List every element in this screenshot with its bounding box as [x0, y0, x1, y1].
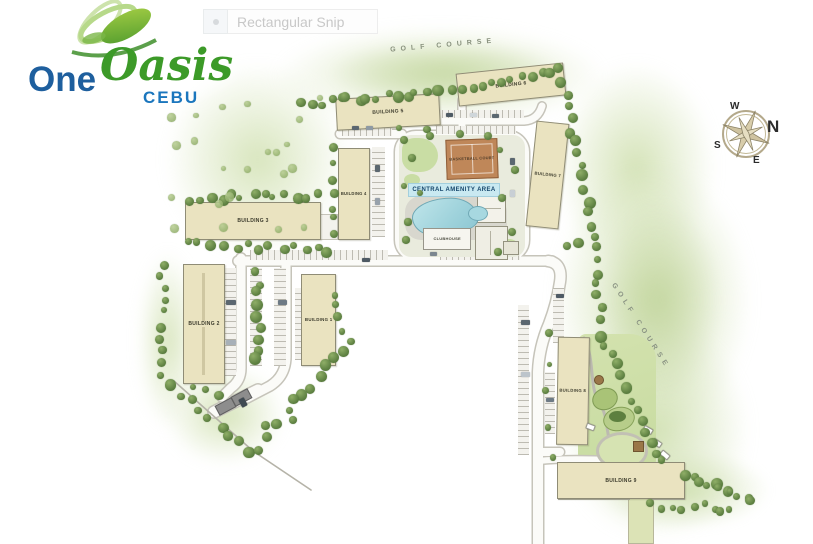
tree-icon	[579, 162, 586, 169]
tree-icon	[583, 207, 592, 216]
tree-icon	[498, 194, 506, 202]
tree-icon	[271, 419, 282, 430]
tree-icon	[542, 387, 549, 394]
tree-icon	[404, 218, 411, 225]
tree-icon	[320, 359, 332, 371]
tree-icon	[269, 194, 275, 200]
car	[446, 113, 453, 117]
tree-icon	[408, 154, 415, 161]
tree-icon	[205, 240, 216, 251]
tree-icon	[612, 358, 623, 369]
tree-icon	[328, 176, 337, 185]
tree-icon	[234, 245, 243, 254]
parking-stalls	[436, 126, 516, 134]
snip-mode-label[interactable]: Rectangular Snip	[228, 9, 378, 34]
tree-icon	[329, 206, 337, 214]
car	[521, 320, 530, 325]
tree-icon	[249, 352, 261, 364]
tree-icon	[332, 292, 339, 299]
tree-icon	[280, 245, 290, 255]
tree-icon	[338, 346, 349, 357]
tree-icon	[511, 166, 518, 173]
tree-icon	[570, 135, 581, 146]
tree-icon	[223, 431, 232, 440]
tree-icon	[591, 290, 600, 299]
tree-icon	[254, 245, 263, 254]
car	[278, 300, 287, 305]
tree-icon	[191, 137, 198, 144]
car	[510, 190, 515, 197]
clubhouse: CLUBHOUSE	[423, 228, 471, 250]
tree-icon	[329, 95, 337, 103]
tree-icon	[244, 166, 251, 173]
car	[492, 114, 499, 118]
tree-icon	[587, 222, 596, 231]
basketball-court: BASKETBALL COURT	[445, 138, 498, 180]
building-8: BUILDING 8	[556, 337, 590, 446]
tree-icon	[634, 406, 642, 414]
tree-icon	[592, 242, 601, 251]
building-label: BUILDING 9	[605, 478, 636, 484]
south-boundary-line2	[651, 499, 685, 500]
car	[510, 158, 515, 165]
parking-stalls	[372, 147, 385, 237]
tree-icon	[251, 189, 261, 199]
building-label: BUILDING 4	[341, 192, 367, 197]
tree-icon	[162, 297, 169, 304]
tree-icon	[448, 85, 457, 94]
tree-icon	[716, 507, 724, 515]
car	[521, 372, 530, 377]
car	[226, 340, 236, 345]
car	[366, 126, 373, 130]
tree-icon	[339, 328, 345, 334]
tree-icon	[321, 247, 332, 258]
snip-mode-button[interactable]	[203, 9, 228, 34]
tree-icon	[555, 77, 566, 88]
kiddie-pool	[468, 206, 488, 221]
south-boundary-line	[558, 499, 630, 500]
tree-icon	[508, 228, 516, 236]
tree-icon	[157, 372, 164, 379]
tree-icon	[251, 267, 260, 276]
amenity-structure	[503, 241, 519, 255]
building-label: BUILDING 3	[237, 218, 268, 224]
car	[362, 258, 370, 262]
tree-icon	[203, 414, 211, 422]
tree-icon	[332, 301, 339, 308]
tree-icon	[156, 323, 166, 333]
building-label: BUILDING 2	[187, 321, 220, 327]
tree-icon	[528, 72, 538, 82]
tree-icon	[185, 238, 192, 245]
tree-icon	[432, 85, 443, 96]
tree-icon	[402, 236, 409, 243]
tree-icon	[288, 394, 299, 405]
tree-icon	[565, 102, 573, 110]
building-label: BUILDING 7	[534, 171, 561, 179]
tree-icon	[243, 447, 254, 458]
tree-icon	[289, 416, 297, 424]
tree-icon	[330, 189, 339, 198]
tree-icon	[168, 194, 175, 201]
site-plan-page: BUILDING 1 BUILDING 2 BUILDING 3 BUILDIN…	[0, 0, 813, 544]
tree-icon	[286, 407, 293, 414]
tree-icon	[702, 500, 708, 506]
tree-icon	[600, 342, 607, 349]
tree-icon	[288, 164, 296, 172]
snip-mode-icon	[213, 19, 219, 25]
tree-icon	[564, 91, 573, 100]
compass-west: W	[730, 101, 739, 112]
tree-icon	[677, 506, 684, 513]
compass-south: S	[714, 140, 721, 151]
car	[546, 398, 554, 402]
tree-icon	[158, 346, 166, 354]
tree-icon	[658, 456, 665, 463]
logo-word-one: One	[28, 60, 96, 100]
park-sandbox	[633, 441, 644, 452]
tree-icon	[193, 238, 201, 246]
logo-subtitle-cebu: CEBU	[143, 88, 199, 108]
tree-icon	[314, 189, 323, 198]
tree-icon	[393, 91, 404, 102]
compass-north: N	[767, 117, 779, 137]
tree-icon	[458, 85, 466, 93]
tree-icon	[726, 506, 733, 513]
parking-stalls	[274, 268, 286, 366]
tree-icon	[221, 166, 226, 171]
tree-icon	[347, 338, 355, 346]
tree-icon	[592, 279, 600, 287]
structure-roofline	[490, 231, 491, 255]
tree-icon	[553, 63, 563, 73]
compass-east: E	[753, 155, 760, 166]
tree-icon	[296, 98, 306, 108]
tree-icon	[265, 149, 271, 155]
tree-icon	[225, 192, 234, 201]
tree-icon	[573, 238, 584, 249]
tree-icon	[170, 224, 179, 233]
tree-icon	[308, 100, 318, 110]
tree-icon	[545, 424, 551, 430]
snip-toolbar: Rectangular Snip	[203, 9, 378, 32]
tree-icon	[745, 496, 754, 505]
building-label: BUILDING 5	[372, 108, 404, 116]
car	[226, 300, 236, 305]
car	[556, 294, 564, 298]
tree-icon	[273, 149, 280, 156]
building-3: BUILDING 3	[185, 202, 321, 240]
logo-word-oasis: Oasis	[100, 40, 233, 91]
car	[352, 126, 359, 130]
tree-icon	[563, 242, 571, 250]
tree-icon	[302, 194, 311, 203]
tree-icon	[303, 246, 311, 254]
tree-icon	[360, 94, 369, 103]
tree-icon	[400, 136, 408, 144]
park-tree-blob	[609, 411, 626, 422]
tree-icon	[214, 391, 224, 401]
tree-icon	[188, 395, 197, 404]
tree-icon	[219, 241, 229, 251]
tree-icon	[284, 142, 289, 147]
building-label: BUILDING 8	[560, 388, 587, 394]
tree-icon	[330, 214, 336, 220]
compass-rose: W N S E	[703, 93, 799, 189]
car	[375, 165, 380, 172]
central-amenity-label: CENTRAL AMENITY AREA	[412, 187, 495, 193]
tree-icon	[219, 223, 228, 232]
tree-icon	[196, 197, 204, 205]
park-mound	[594, 375, 604, 385]
tree-icon	[494, 248, 501, 255]
parking-stalls	[518, 305, 529, 455]
tree-icon	[714, 484, 721, 491]
tree-icon	[519, 72, 526, 79]
tree-icon	[640, 428, 649, 437]
tree-icon	[190, 384, 196, 390]
tree-icon	[333, 312, 342, 321]
tree-icon	[330, 160, 336, 166]
building-9: BUILDING 9	[557, 462, 685, 499]
tree-icon	[497, 78, 506, 87]
tree-icon	[727, 488, 734, 495]
tree-icon	[317, 95, 323, 101]
building-4: BUILDING 4	[338, 148, 370, 240]
tree-icon	[165, 379, 176, 390]
building-2: BUILDING 2	[183, 264, 225, 384]
tree-icon	[157, 358, 166, 367]
tree-icon	[172, 141, 181, 150]
amenity-lawn	[402, 138, 438, 172]
tree-icon	[156, 272, 163, 279]
tree-icon	[423, 88, 431, 96]
car	[470, 113, 477, 117]
car	[375, 198, 380, 205]
car	[430, 252, 437, 256]
clubhouse-label: CLUBHOUSE	[433, 237, 461, 242]
tree-icon	[318, 102, 325, 109]
tree-icon	[595, 331, 607, 343]
tree-icon	[621, 382, 633, 394]
tree-icon	[251, 299, 263, 311]
tree-icon	[262, 432, 272, 442]
building-label: BUILDING 1	[305, 317, 333, 322]
